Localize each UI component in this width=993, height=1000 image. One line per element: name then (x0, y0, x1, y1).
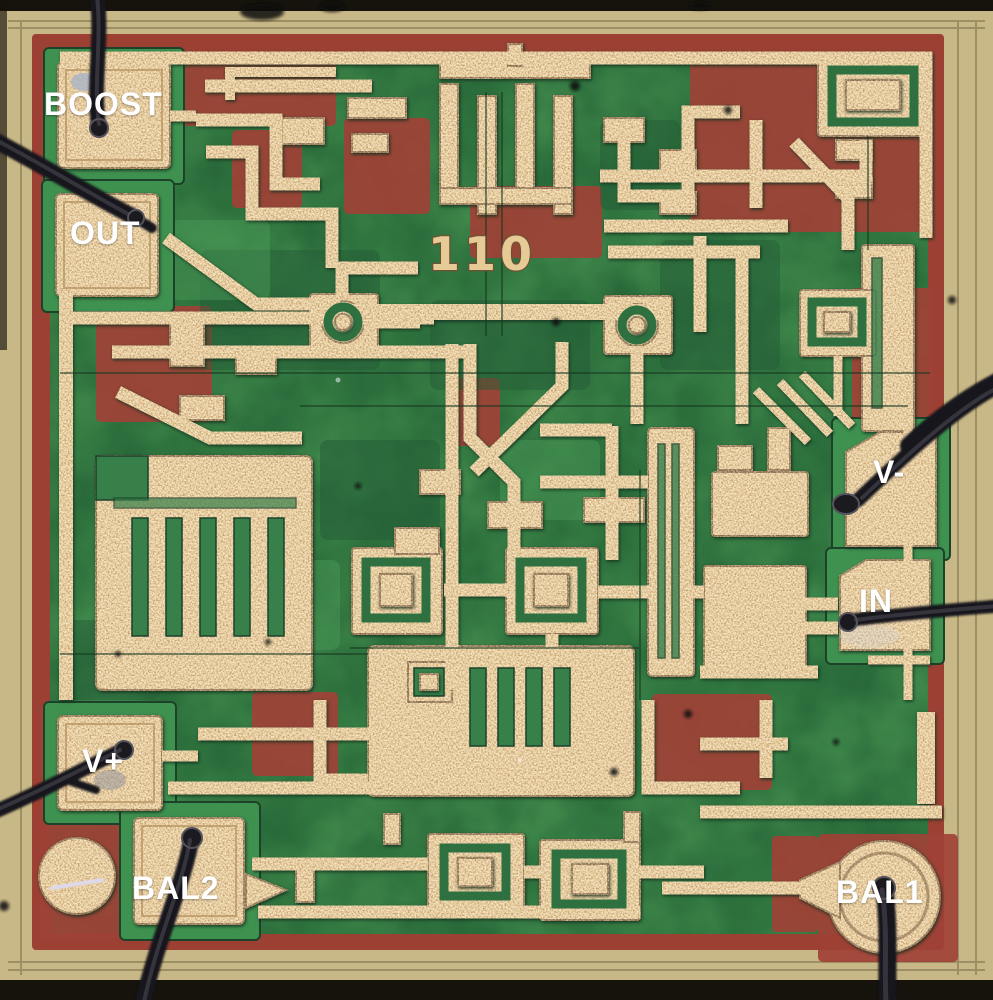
right-slab (648, 428, 694, 676)
die-marking: 110 (428, 227, 536, 281)
pad-label-vminus: V- (873, 456, 905, 488)
pad-label-boost: BOOST (44, 88, 163, 120)
pad-label-in: IN (859, 585, 893, 617)
pad-label-bal2: BAL2 (132, 872, 220, 904)
pad-label-vplus: V+ (82, 745, 124, 777)
round-test-pad (39, 838, 115, 914)
pad-label-bal1: BAL1 (836, 876, 924, 908)
die-photo: 110 (0, 0, 993, 1000)
die-photo-svg: 110 (0, 0, 993, 1000)
pad-label-out: OUT (70, 217, 141, 249)
